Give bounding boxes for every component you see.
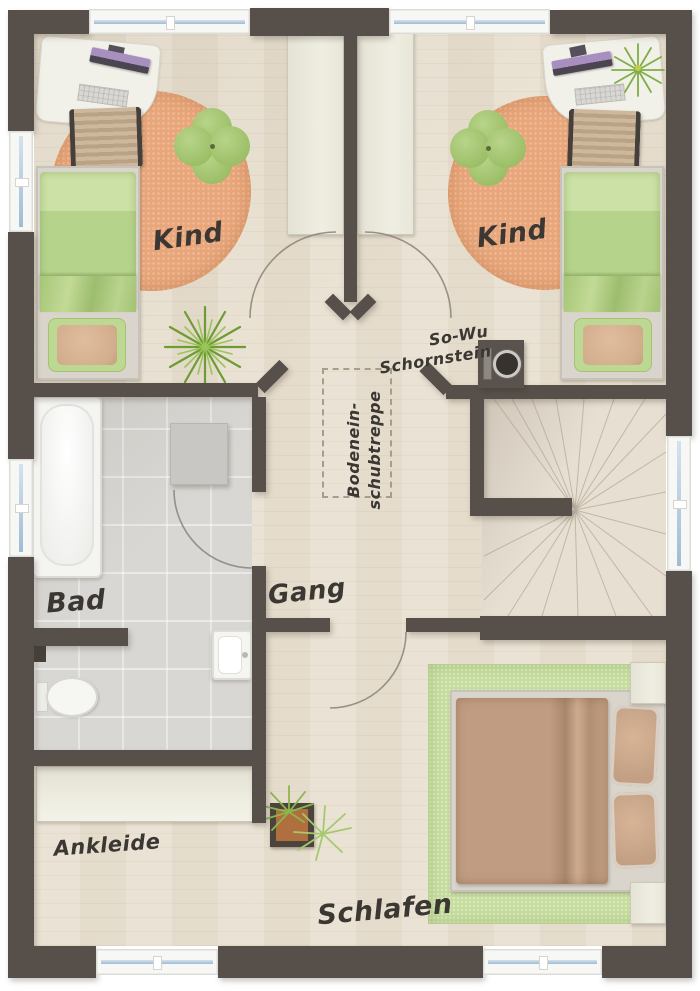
window-top-left [89,9,250,34]
door-arc-kid-right [365,232,451,318]
attic-annotation-line2: schubtreppe [364,391,385,510]
door-arc-bathroom [174,490,252,568]
door-arc-bedroom [330,632,406,708]
window-top-right [389,9,550,34]
desk-plant [612,44,664,96]
floor-plant [165,307,245,387]
floor-plan: Kind Kind Bad Gang Ankleide Schlafen So-… [0,0,700,991]
kid-partition-wall [344,34,357,302]
room-label-bad: Bad [45,584,107,619]
window-right-stairs [667,436,691,571]
window-bottom-ankleide [96,949,218,975]
window-left-upper [9,131,33,232]
window-left-lower [9,459,33,557]
attic-ladder-annotation: Bodenein- schubtreppe [343,391,385,510]
door-arc-kid-left [250,232,336,318]
window-bottom-schlafen [483,949,602,975]
attic-annotation-line1: Bodenein- [343,391,364,510]
door-arcs [174,232,451,708]
planter-plants [262,786,351,860]
